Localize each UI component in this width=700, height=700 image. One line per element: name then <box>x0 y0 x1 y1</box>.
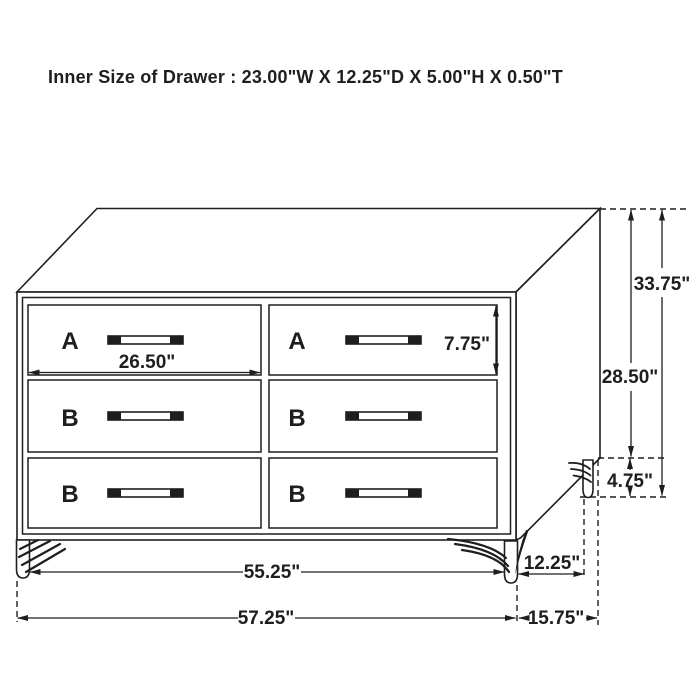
drawer-label-top-right: A <box>288 328 305 355</box>
drawer-handle-bottom-left <box>108 489 183 497</box>
drawer-handle-top-left <box>108 336 183 344</box>
drawer-label-bottom-right: B <box>288 481 305 508</box>
drawer-label-middle-left: B <box>61 405 78 432</box>
dresser-body: A A B B B B <box>17 209 600 541</box>
diagram-svg: Inner Size of Drawer : 23.00"W X 12.25"D… <box>0 0 700 700</box>
dresser-top-face <box>17 209 600 293</box>
diagram-title: Inner Size of Drawer : 23.00"W X 12.25"D… <box>48 67 563 87</box>
dim-overall-width-label: 57.25" <box>238 608 295 629</box>
drawer-label-top-left: A <box>61 328 78 355</box>
drawer-handle-middle-left <box>108 412 183 420</box>
drawer-handle-bottom-right <box>346 489 421 497</box>
dresser-dimension-diagram: Inner Size of Drawer : 23.00"W X 12.25"D… <box>0 0 700 700</box>
dim-leg-height-label: 4.75" <box>607 471 653 492</box>
front-right-leg <box>505 541 518 583</box>
dim-case-height-label: 28.50" <box>602 367 659 388</box>
dim-overall-depth-label: 15.75" <box>528 608 585 629</box>
drawer-label-middle-right: B <box>288 405 305 432</box>
dim-drawer-height-label: 7.75" <box>444 334 490 355</box>
drawer-handle-top-right <box>346 336 421 344</box>
dim-overall-height-label: 33.75" <box>634 274 691 295</box>
dresser-front-face <box>17 292 516 540</box>
dim-drawer-width-label: 26.50" <box>119 352 176 373</box>
drawer-label-bottom-left: B <box>61 481 78 508</box>
dim-leg-inset-depth-label: 12.25" <box>524 553 581 574</box>
dim-inner-width-label: 55.25" <box>244 562 301 583</box>
drawer-handle-middle-right <box>346 412 421 420</box>
dim-leg-inset-depth: 12.25" <box>519 553 585 574</box>
